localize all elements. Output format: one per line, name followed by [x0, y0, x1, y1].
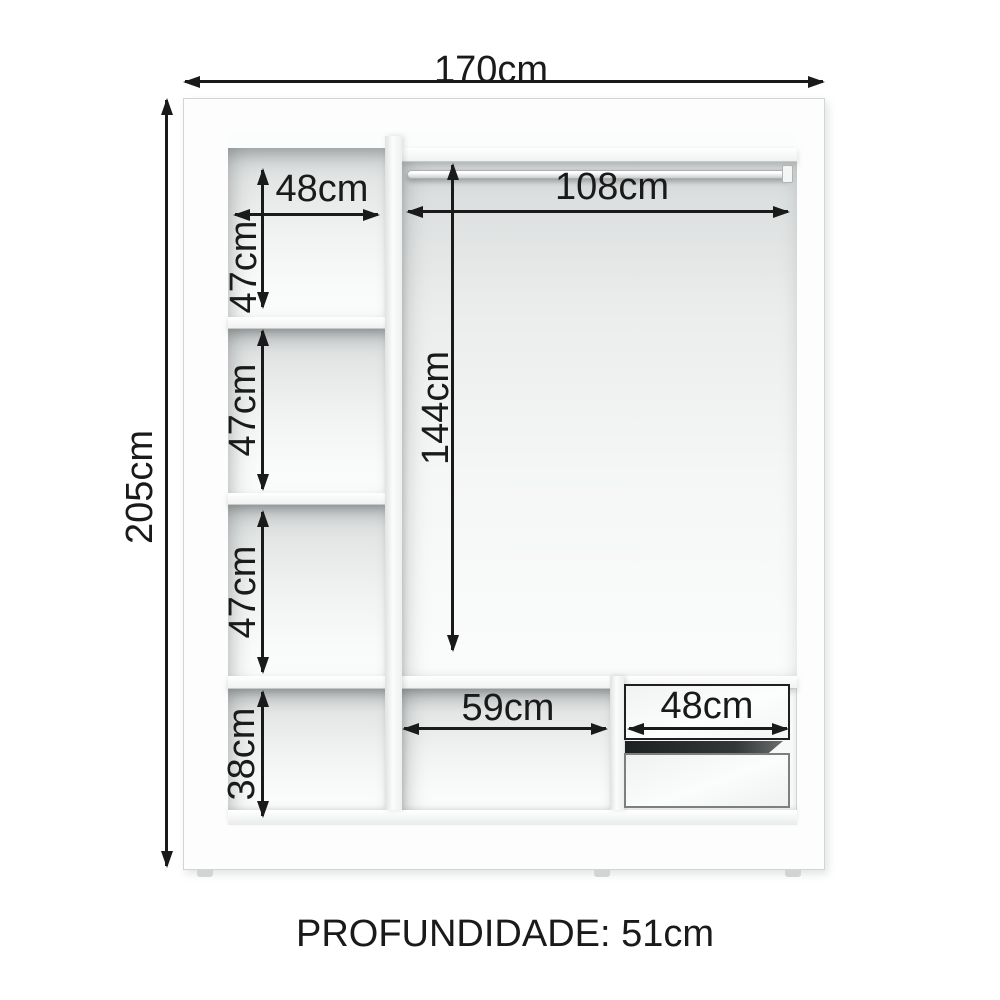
dim-label-overall-width: 170cm: [391, 50, 591, 90]
dim-label-bottom-middle-width: 59cm: [408, 688, 608, 728]
rod-compartment: [402, 148, 797, 676]
drawer-bottom: [624, 753, 790, 808]
rod-end-cap: [782, 165, 793, 183]
drawer-opening: [625, 741, 783, 753]
wardrobe-dimension-diagram: 170cm 205cm 48cm 47cm 47cm 47cm 38cm 108…: [0, 0, 1000, 1000]
divider-wall-main: [385, 136, 402, 810]
dim-arrow-rod-section-width: [408, 210, 788, 213]
dim-label-rod-section-width: 108cm: [512, 167, 712, 207]
dim-label-overall-height: 205cm: [120, 387, 160, 587]
foot-right: [785, 869, 801, 877]
interior-ceiling: [228, 132, 797, 148]
dim-label-rod-section-height: 144cm: [416, 308, 456, 508]
foot-center: [594, 869, 610, 877]
dim-label-left-bottom-height: 38cm: [222, 654, 262, 854]
dim-arrow-overall-height: [165, 100, 168, 866]
dim-label-compartment-2-height: 47cm: [223, 310, 263, 510]
dim-label-drawer-width: 48cm: [607, 686, 807, 726]
dim-arrow-drawer-width: [629, 727, 787, 730]
top-shelf: [402, 148, 797, 162]
cabinet-floor: [228, 810, 797, 825]
depth-label: PROFUNDIDADE: 51cm: [255, 913, 755, 955]
foot-left: [197, 869, 213, 877]
dim-label-left-top-width: 48cm: [242, 169, 402, 209]
